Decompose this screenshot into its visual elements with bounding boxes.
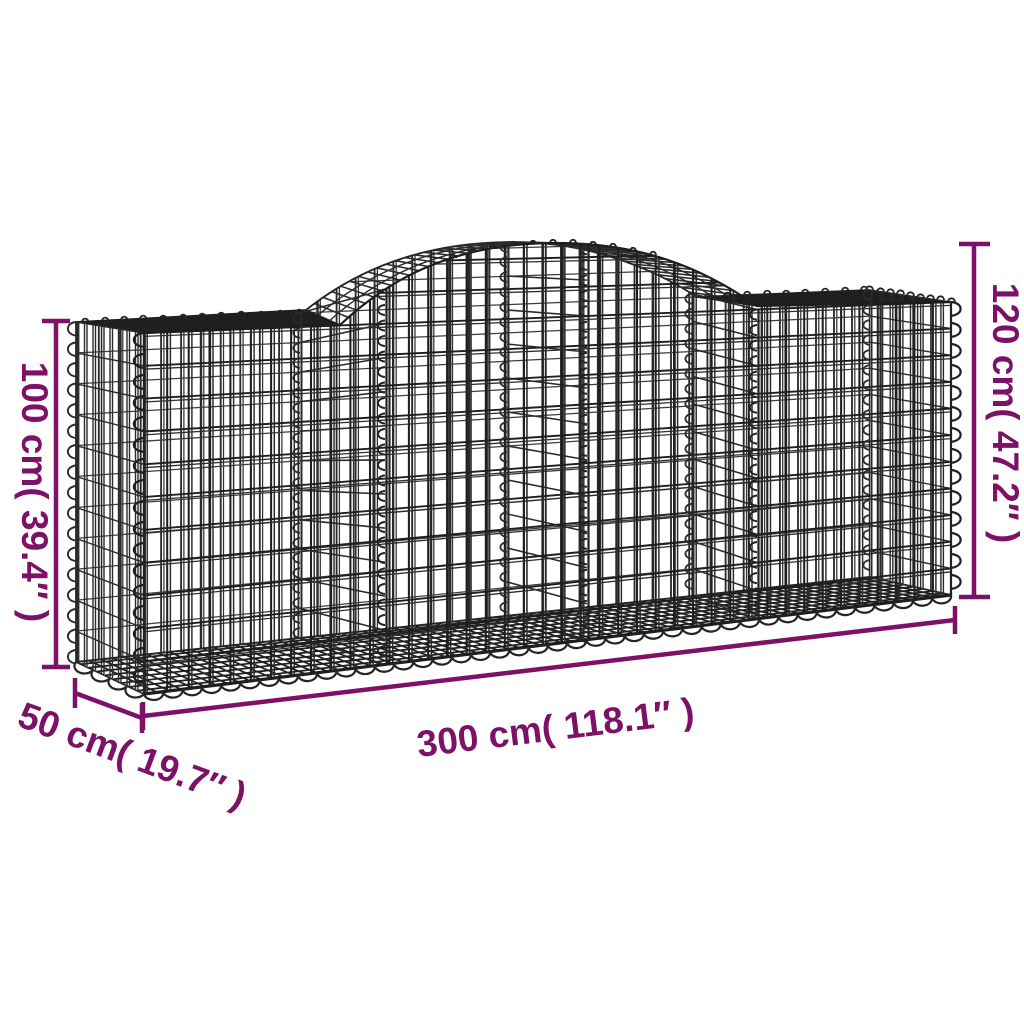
svg-text:120 cm( 47.2″ ): 120 cm( 47.2″ ) <box>985 283 1024 543</box>
svg-text:100 cm( 39.4″ ): 100 cm( 39.4″ ) <box>14 362 55 622</box>
